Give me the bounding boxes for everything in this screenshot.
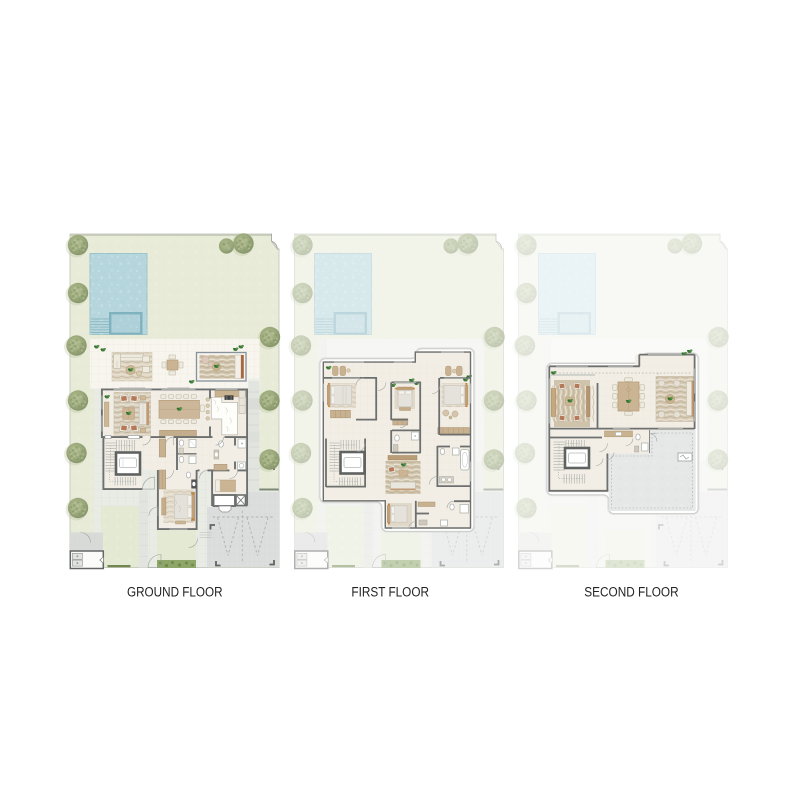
- svg-text:GROUND FLOOR: GROUND FLOOR: [127, 585, 223, 600]
- svg-text:SECOND FLOOR: SECOND FLOOR: [584, 585, 679, 600]
- svg-text:FIRST FLOOR: FIRST FLOOR: [351, 585, 429, 600]
